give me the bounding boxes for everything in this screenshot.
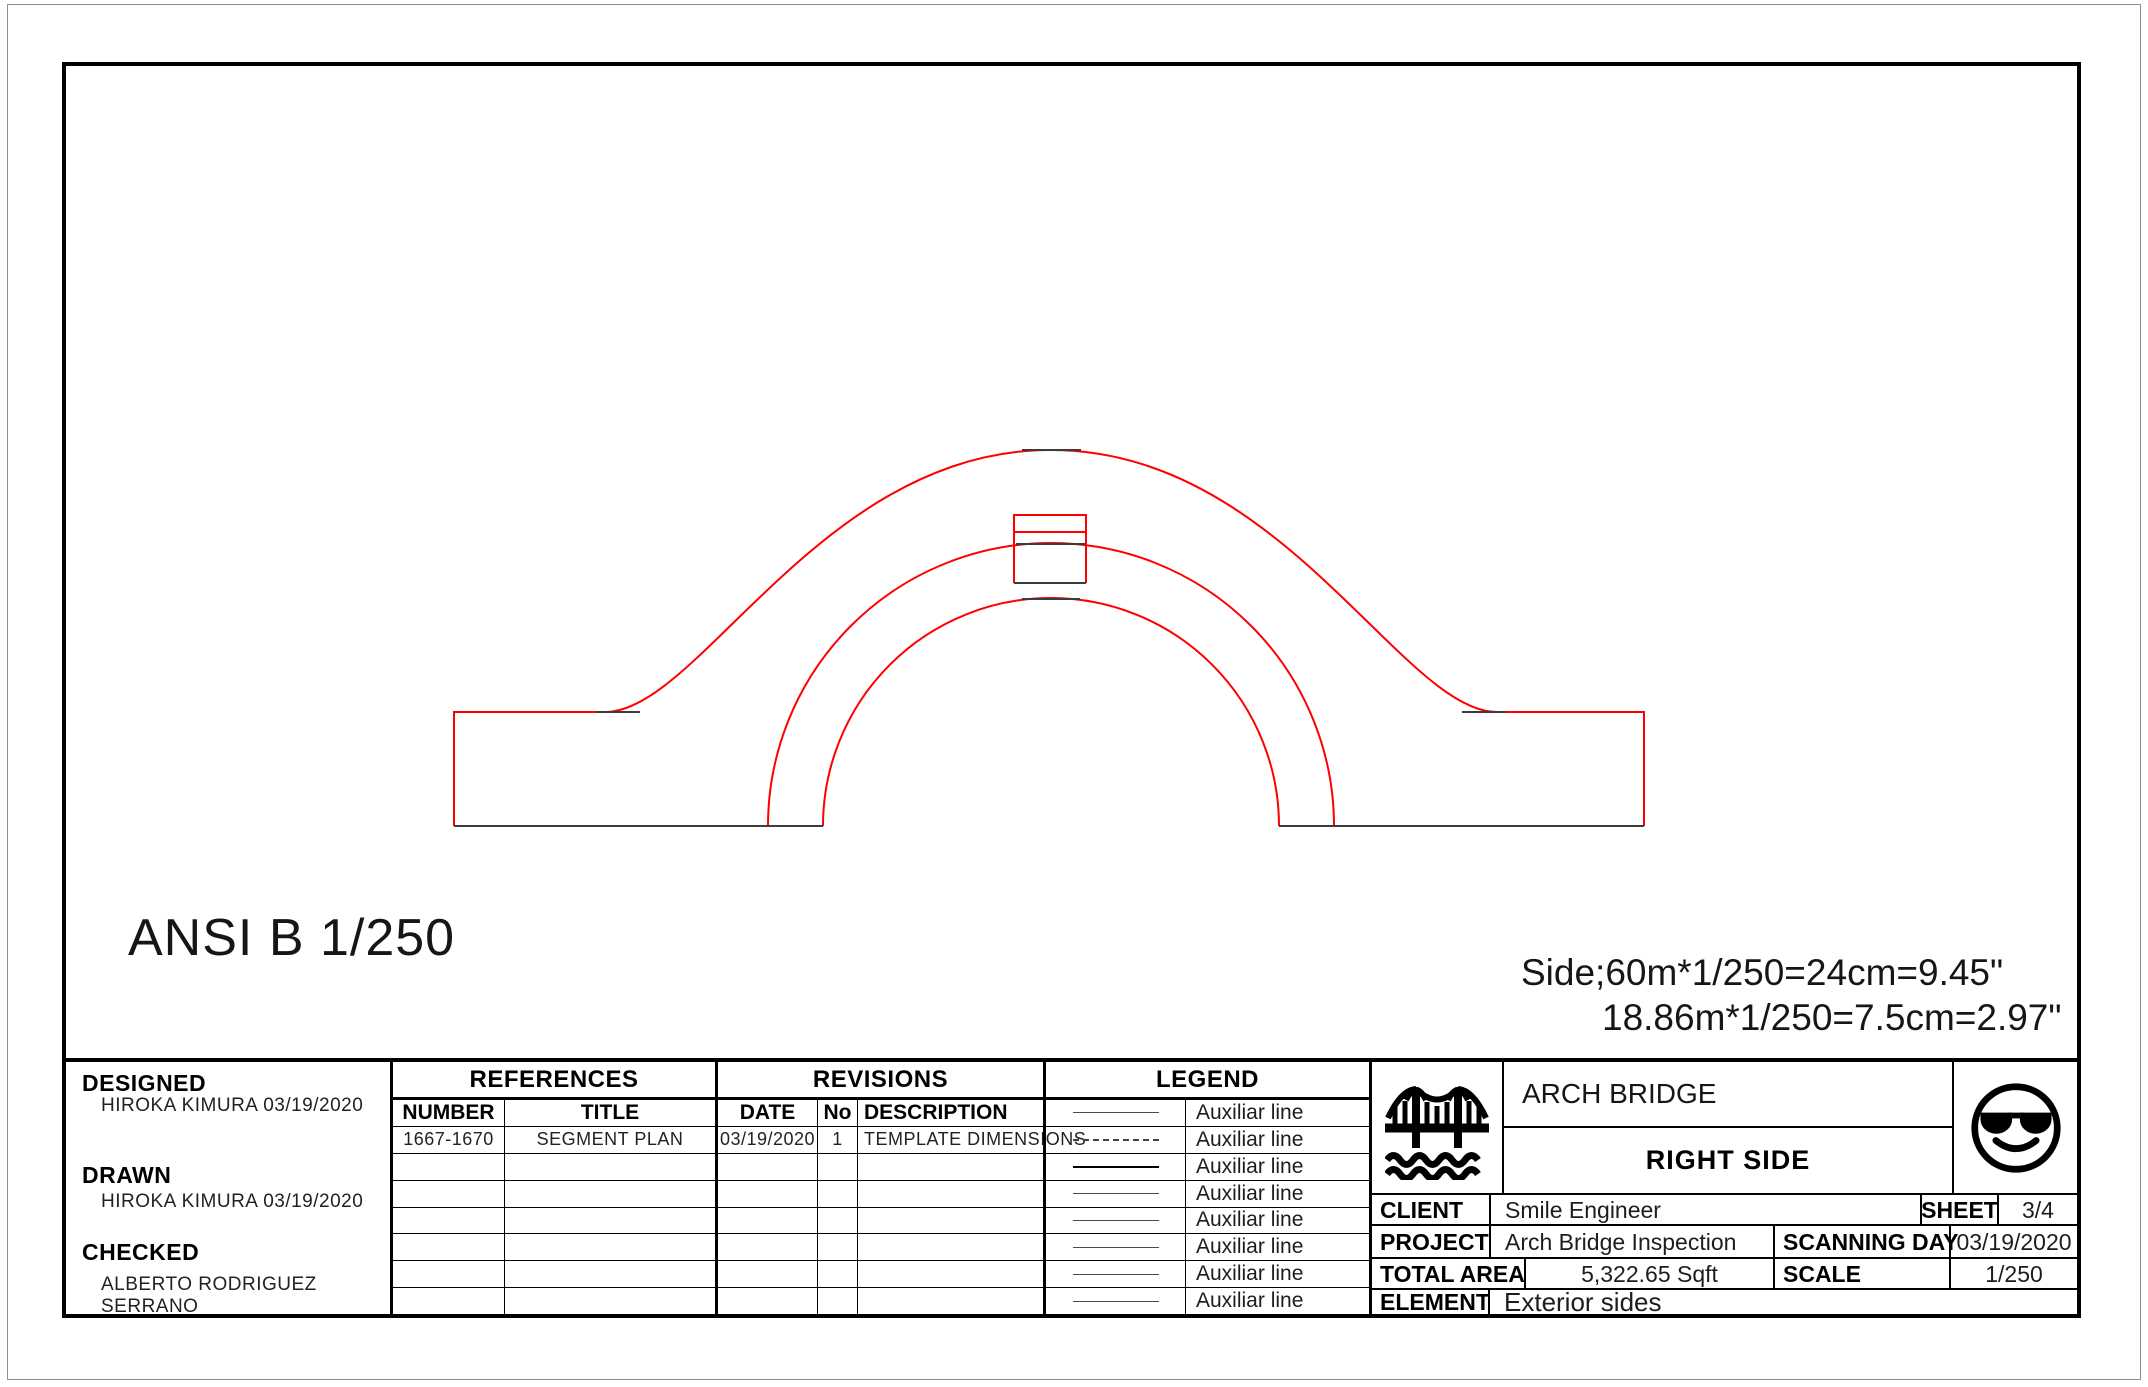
legend-item-label: Auxiliar line — [1186, 1127, 1369, 1153]
revisions-empty-row — [718, 1261, 1043, 1288]
revision-date: 03/19/2020 — [718, 1127, 818, 1153]
legend-row: Auxiliar line — [1046, 1288, 1369, 1314]
legend-row: Auxiliar line — [1046, 1100, 1369, 1127]
revisions-table: REVISIONS DATE No DESCRIPTION 03/19/2020… — [715, 1062, 1043, 1314]
legend-line-sample-solid — [1073, 1274, 1159, 1275]
scanning-day-label: SCANNING DAY — [1773, 1226, 1951, 1259]
legend-row: Auxiliar line — [1046, 1127, 1369, 1154]
bridge-icon — [1385, 1076, 1489, 1180]
revisions-empty-row — [718, 1288, 1043, 1314]
references-empty-row — [393, 1208, 715, 1235]
legend-header: LEGEND — [1046, 1062, 1369, 1100]
client-label: CLIENT — [1372, 1195, 1491, 1226]
reference-title: SEGMENT PLAN — [505, 1127, 715, 1153]
references-table: REFERENCES NUMBER TITLE 1667-1670 SEGMEN… — [390, 1062, 715, 1314]
drawn-label: DRAWN — [82, 1162, 171, 1189]
legend-line-sample-solid — [1073, 1247, 1159, 1248]
revisions-subheader-row: DATE No DESCRIPTION — [718, 1100, 1043, 1127]
legend-item-label: Auxiliar line — [1186, 1154, 1369, 1180]
revisions-empty-row — [718, 1234, 1043, 1261]
project-info-section: ARCH BRIDGE RIGHT SIDE CLIENT Smile Engi… — [1369, 1062, 2077, 1314]
arch-intrados-path — [823, 598, 1279, 826]
total-area-value: 5,322.65 Sqft — [1526, 1259, 1773, 1290]
element-label: ELEMENT — [1372, 1290, 1490, 1314]
revisions-empty-row — [718, 1154, 1043, 1181]
legend-line-sample-bold — [1073, 1166, 1159, 1168]
legend-line-sample-solid — [1073, 1301, 1159, 1302]
legend-item-label: Auxiliar line — [1186, 1208, 1369, 1234]
references-empty-row — [393, 1181, 715, 1208]
revision-row: 03/19/2020 1 TEMPLATE DIMENSIONS — [718, 1127, 1043, 1154]
bridge-outer-profile-path — [454, 450, 1644, 826]
revisions-col-date: DATE — [718, 1100, 818, 1126]
legend-item-label: Auxiliar line — [1186, 1288, 1369, 1314]
scale-label: SCALE — [1773, 1259, 1951, 1290]
keystone-outline-path — [1014, 515, 1086, 583]
legend-row: Auxiliar line — [1046, 1234, 1369, 1261]
references-header: REFERENCES — [393, 1062, 715, 1100]
project-label: PROJECT — [1372, 1226, 1491, 1259]
revisions-header: REVISIONS — [718, 1062, 1043, 1100]
legend-line-sample-solid — [1073, 1112, 1159, 1113]
legend-item-label: Auxiliar line — [1186, 1100, 1369, 1126]
revision-description: TEMPLATE DIMENSIONS — [858, 1127, 1043, 1153]
references-row: 1667-1670 SEGMENT PLAN — [393, 1127, 715, 1154]
sheet-value: 3/4 — [1999, 1195, 2077, 1226]
title-block: DESIGNED HIROKA KIMURA 03/19/2020 DRAWN … — [62, 1058, 2081, 1318]
references-empty-row — [393, 1288, 715, 1314]
reference-number: 1667-1670 — [393, 1127, 505, 1153]
scale-note-line1: Side;60m*1/250=24cm=9.45" — [1521, 952, 2003, 994]
legend-line-sample-solid — [1073, 1193, 1159, 1194]
view-name-title: RIGHT SIDE — [1504, 1128, 1952, 1193]
revisions-empty-row — [718, 1208, 1043, 1235]
sheet-label: SHEET — [1920, 1195, 1999, 1226]
legend-line-sample-solid — [1073, 1220, 1159, 1221]
total-area-label: TOTAL AREA — [1372, 1259, 1526, 1290]
legend-item-label: Auxiliar line — [1186, 1261, 1369, 1287]
references-col-number: NUMBER — [393, 1100, 505, 1126]
checked-value: ALBERTO RODRIGUEZ SERRANO — [101, 1274, 390, 1318]
legend-row: Auxiliar line — [1046, 1154, 1369, 1181]
revision-no: 1 — [818, 1127, 858, 1153]
legend-table: LEGEND Auxiliar line Auxiliar line Auxil… — [1043, 1062, 1369, 1314]
element-value: Exterior sides — [1490, 1290, 2077, 1314]
revisions-empty-row — [718, 1181, 1043, 1208]
drawing-sheet: ANSI B 1/250 Side;60m*1/250=24cm=9.45" 1… — [0, 0, 2148, 1387]
drawn-value: HIROKA KIMURA 03/19/2020 — [101, 1191, 363, 1213]
signatures-column: DESIGNED HIROKA KIMURA 03/19/2020 DRAWN … — [66, 1062, 390, 1314]
legend-item-label: Auxiliar line — [1186, 1181, 1369, 1207]
references-empty-row — [393, 1234, 715, 1261]
references-col-title: TITLE — [505, 1100, 715, 1126]
scale-value: 1/250 — [1951, 1259, 2077, 1290]
revisions-col-description: DESCRIPTION — [858, 1100, 1043, 1126]
project-name-title: ARCH BRIDGE — [1504, 1062, 1952, 1128]
scale-note-line2: 18.86m*1/250=7.5cm=2.97" — [1602, 997, 2062, 1039]
legend-line-sample-dashed — [1073, 1139, 1159, 1141]
checked-label: CHECKED — [82, 1239, 199, 1266]
designed-label: DESIGNED — [82, 1070, 206, 1097]
legend-item-label: Auxiliar line — [1186, 1234, 1369, 1260]
references-empty-row — [393, 1154, 715, 1181]
project-value: Arch Bridge Inspection — [1491, 1226, 1773, 1259]
references-subheader-row: NUMBER TITLE — [393, 1100, 715, 1127]
smiley-sunglasses-icon — [1968, 1080, 2064, 1176]
designed-value: HIROKA KIMURA 03/19/2020 — [101, 1095, 363, 1117]
references-empty-row — [393, 1261, 715, 1288]
legend-row: Auxiliar line — [1046, 1261, 1369, 1288]
scanning-day-value: 03/19/2020 — [1951, 1226, 2077, 1259]
client-value: Smile Engineer — [1491, 1195, 1920, 1226]
arch-extrados-path — [768, 543, 1334, 826]
legend-row: Auxiliar line — [1046, 1181, 1369, 1208]
revisions-col-no: No — [818, 1100, 858, 1126]
sheet-format-label: ANSI B 1/250 — [128, 908, 455, 968]
legend-row: Auxiliar line — [1046, 1208, 1369, 1235]
